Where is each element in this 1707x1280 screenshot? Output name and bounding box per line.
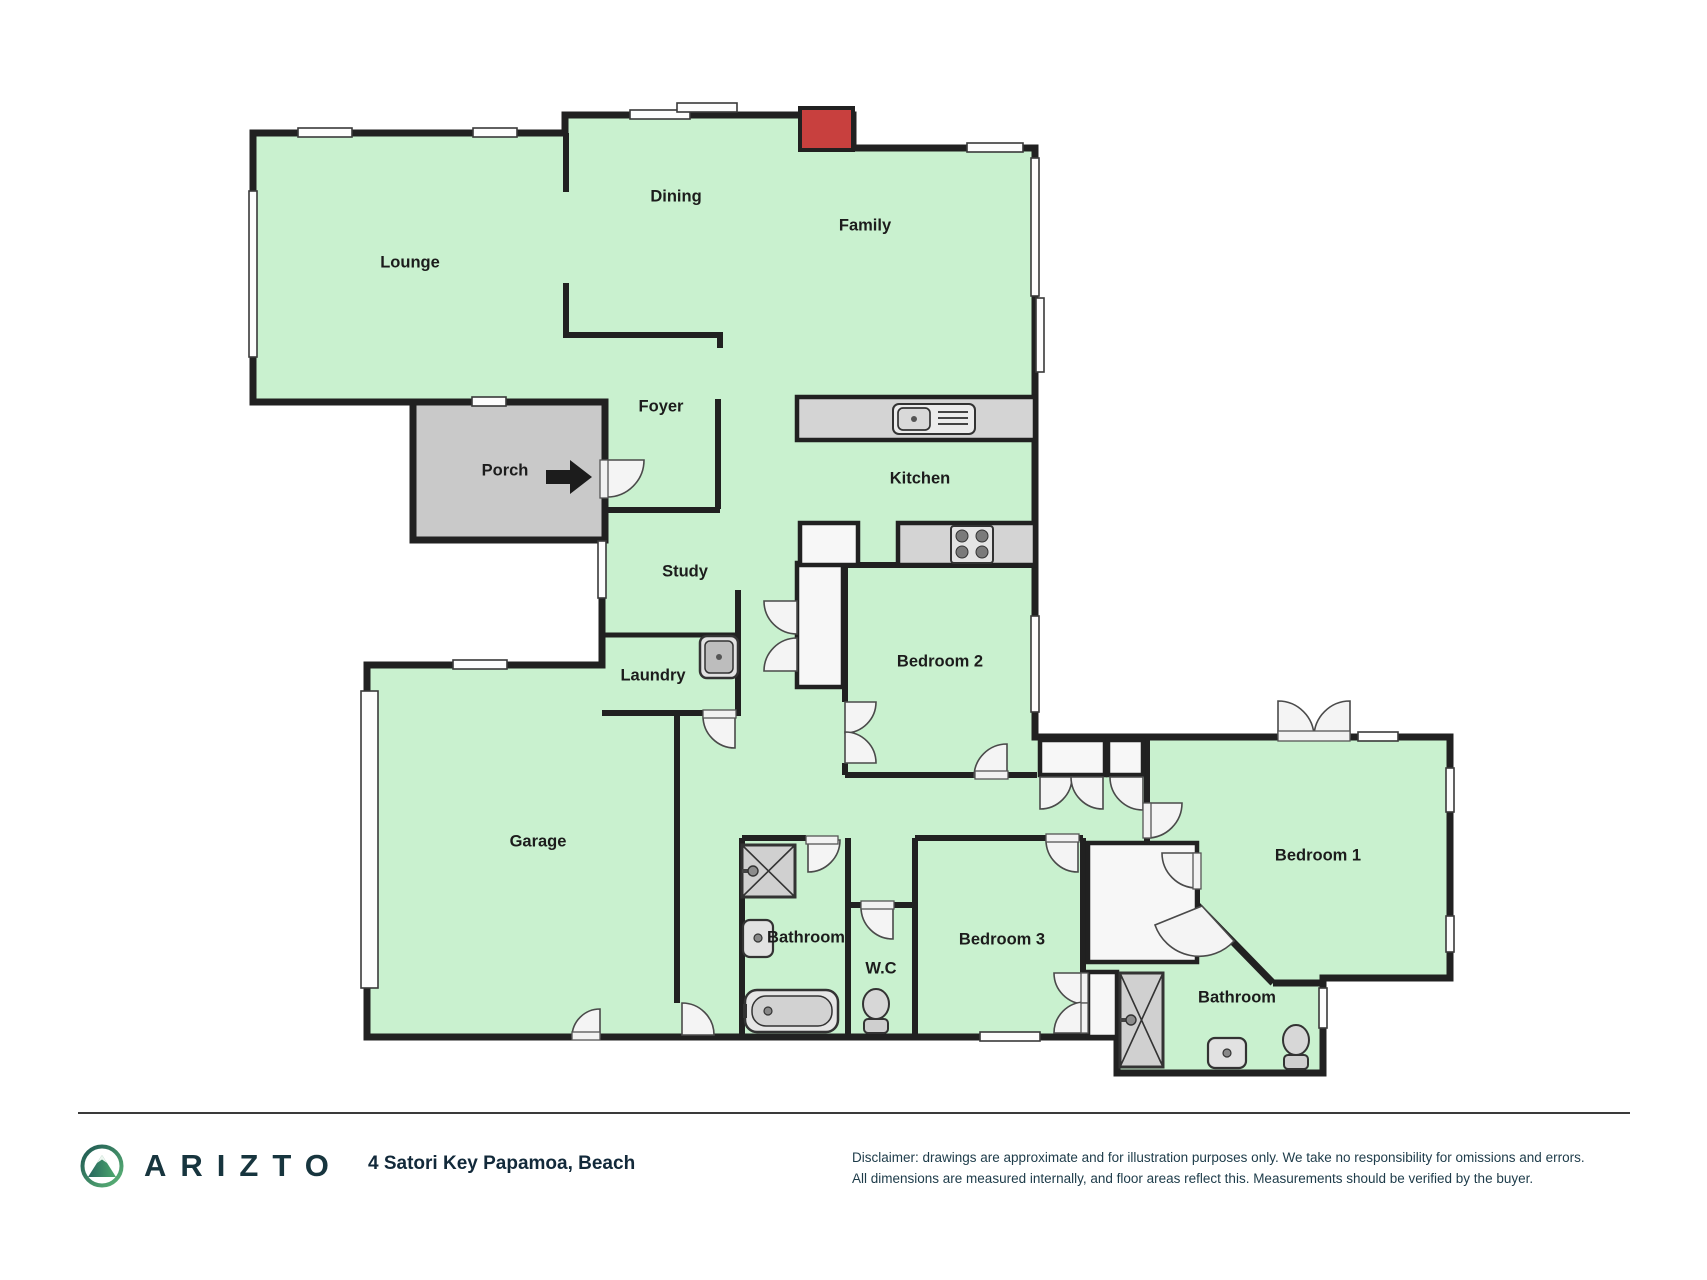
room-label-family: Family bbox=[839, 216, 892, 234]
window bbox=[361, 691, 378, 988]
linen-closet bbox=[1108, 740, 1143, 775]
door-leaf bbox=[1081, 973, 1088, 1003]
door-leaf bbox=[1278, 731, 1350, 741]
door-leaf bbox=[975, 771, 1008, 779]
door-leaf bbox=[1193, 853, 1201, 889]
room-label-lounge: Lounge bbox=[380, 253, 440, 271]
window bbox=[677, 103, 737, 112]
window bbox=[598, 541, 606, 598]
window bbox=[249, 191, 257, 357]
door-leaf bbox=[600, 460, 608, 498]
bedroom3-wardrobe bbox=[1088, 972, 1117, 1037]
disclaimer-line-2: All dimensions are measured internally, … bbox=[852, 1169, 1652, 1190]
window bbox=[1446, 768, 1454, 812]
disclaimer-text: Disclaimer: drawings are approximate and… bbox=[852, 1148, 1652, 1190]
window bbox=[967, 143, 1023, 152]
room-label-laundry: Laundry bbox=[620, 666, 686, 684]
pantry bbox=[800, 523, 858, 565]
arizto-logo-icon bbox=[80, 1144, 124, 1188]
room-label-garage: Garage bbox=[510, 832, 567, 850]
room-label-kitchen: Kitchen bbox=[890, 469, 951, 487]
hall-closet bbox=[797, 563, 843, 687]
room-label-dining: Dining bbox=[650, 187, 701, 205]
door-leaf bbox=[1081, 1003, 1088, 1033]
floor-plan-drawing: Lounge Dining Family Foyer Porch Kitchen… bbox=[0, 0, 1707, 1280]
window bbox=[473, 128, 517, 137]
window bbox=[980, 1032, 1040, 1041]
toilet bbox=[863, 989, 889, 1019]
room-label-bathroom-2: Bathroom bbox=[1198, 988, 1276, 1006]
door-leaf bbox=[1143, 803, 1151, 838]
room-label-bedroom-3: Bedroom 3 bbox=[959, 930, 1045, 948]
window bbox=[472, 397, 506, 406]
footer-divider bbox=[78, 1112, 1630, 1114]
linen-closet bbox=[1040, 740, 1105, 775]
window bbox=[1036, 298, 1044, 372]
footer: ARIZTO 4 Satori Key Papamoa, Beach Discl… bbox=[0, 1120, 1707, 1280]
window bbox=[1031, 616, 1039, 712]
room-label-bedroom-1: Bedroom 1 bbox=[1275, 846, 1361, 864]
window bbox=[1319, 988, 1327, 1028]
brand-name: ARIZTO bbox=[144, 1148, 343, 1184]
room-label-porch: Porch bbox=[482, 461, 529, 479]
room-label-foyer: Foyer bbox=[639, 397, 685, 415]
room-label-wc: W.C bbox=[865, 959, 896, 977]
door-leaf bbox=[703, 710, 736, 718]
floorplan-page: Lounge Dining Family Foyer Porch Kitchen… bbox=[0, 0, 1707, 1280]
room-label-bedroom-2: Bedroom 2 bbox=[897, 652, 983, 670]
door-leaf bbox=[861, 901, 894, 909]
window bbox=[1358, 732, 1398, 741]
window bbox=[298, 128, 352, 137]
door-leaf bbox=[572, 1032, 600, 1040]
ensuite-toilet bbox=[1283, 1025, 1309, 1055]
fireplace bbox=[800, 108, 853, 150]
listing-address: 4 Satori Key Papamoa, Beach bbox=[368, 1153, 635, 1175]
room-label-bathroom: Bathroom bbox=[767, 928, 845, 946]
window bbox=[1031, 158, 1039, 296]
brand-lockup: ARIZTO bbox=[80, 1144, 343, 1188]
door-leaf bbox=[806, 836, 838, 844]
room-label-study: Study bbox=[662, 562, 709, 580]
door-leaf bbox=[1046, 834, 1079, 842]
window bbox=[453, 660, 507, 669]
window bbox=[1446, 916, 1454, 952]
disclaimer-line-1: Disclaimer: drawings are approximate and… bbox=[852, 1148, 1652, 1169]
